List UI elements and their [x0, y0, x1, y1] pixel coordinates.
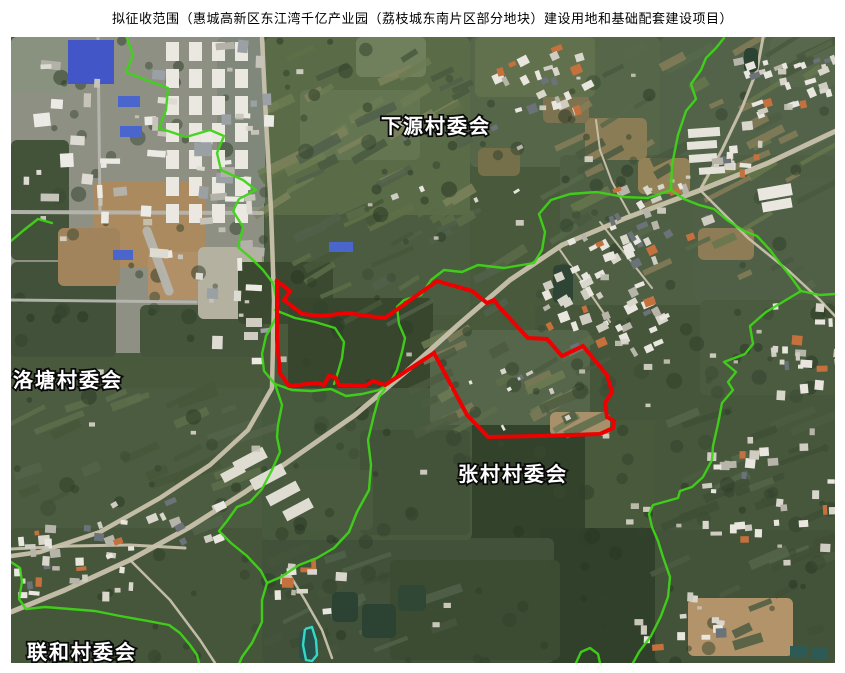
- village-label: 张村村委会: [458, 462, 568, 486]
- village-label: 下源村委会: [381, 114, 491, 138]
- map-layers: 下源村委会洛塘村委会张村村委会联和村委会: [11, 37, 835, 663]
- village-label: 洛塘村委会: [13, 368, 123, 392]
- satellite-map-canvas: 下源村委会洛塘村委会张村村委会联和村委会: [11, 37, 835, 663]
- village-label: 联和村委会: [27, 640, 137, 663]
- satellite-map[interactable]: 下源村委会洛塘村委会张村村委会联和村委会: [11, 37, 835, 663]
- page-title: 拟征收范围（惠城高新区东江湾千亿产业园（荔枝城东南片区部分地块）建设用地和基础配…: [0, 8, 845, 27]
